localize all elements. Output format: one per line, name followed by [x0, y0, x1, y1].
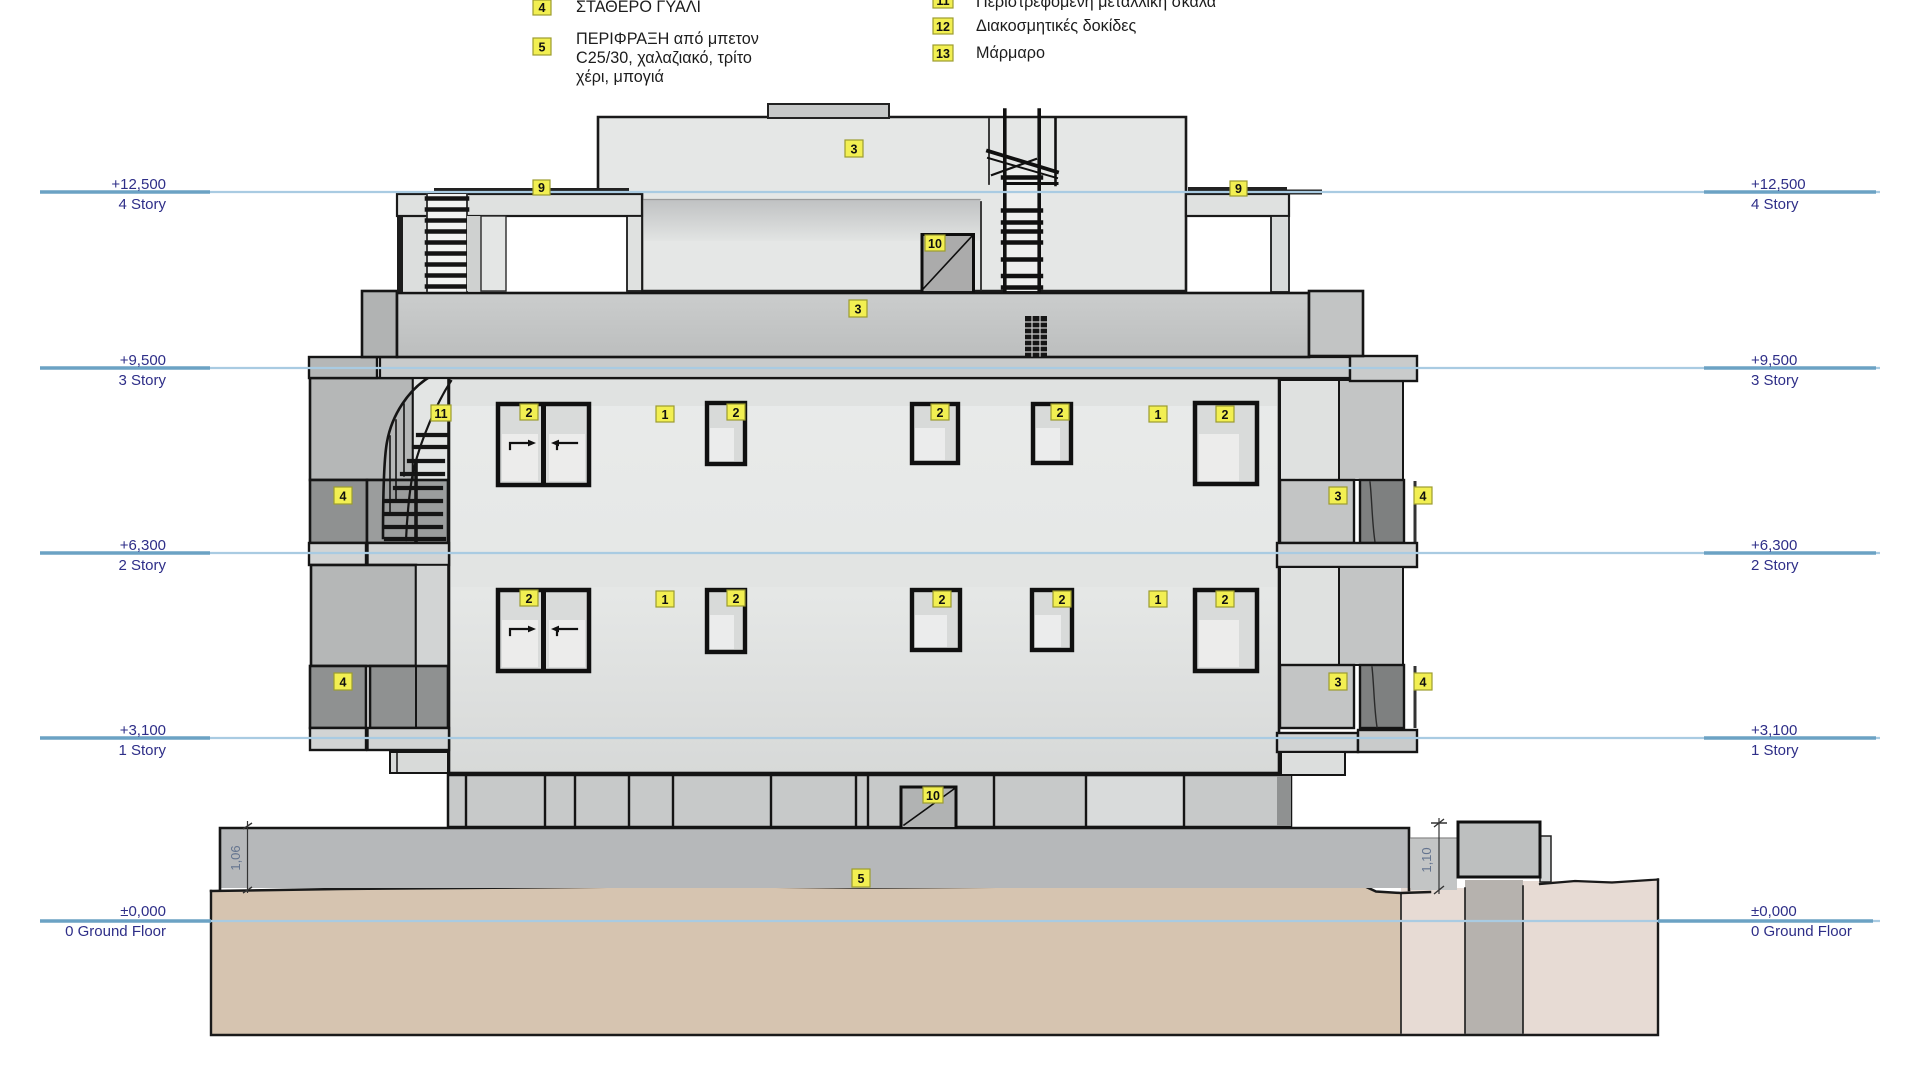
svg-text:4: 4	[539, 1, 546, 15]
svg-text:2: 2	[1057, 406, 1064, 420]
svg-text:C25/30, χαλαζιακό, τρίτο: C25/30, χαλαζιακό, τρίτο	[576, 49, 752, 67]
svg-text:10: 10	[926, 789, 940, 803]
svg-text:2: 2	[1222, 593, 1229, 607]
svg-text:5: 5	[539, 41, 546, 55]
svg-text:4 Story: 4 Story	[118, 196, 166, 213]
svg-text:4: 4	[340, 490, 347, 504]
svg-text:9: 9	[538, 181, 545, 195]
svg-text:2 Story: 2 Story	[118, 557, 166, 574]
svg-text:2: 2	[939, 593, 946, 607]
svg-text:3: 3	[851, 143, 858, 157]
svg-text:ΠΕΡΙΦΡΑΞΗ από μπετον: ΠΕΡΙΦΡΑΞΗ από μπετον	[576, 30, 759, 48]
svg-text:11: 11	[936, 0, 949, 8]
svg-text:+3,100: +3,100	[1751, 722, 1797, 739]
svg-text:Διακοσμητικές δοκίδες: Διακοσμητικές δοκίδες	[976, 17, 1137, 35]
svg-text:3: 3	[855, 303, 862, 317]
svg-text:3: 3	[1335, 490, 1342, 504]
svg-text:12: 12	[936, 20, 950, 34]
svg-text:2: 2	[1059, 593, 1066, 607]
svg-text:ΣΤΑΘΕΡΟ ΓΥΑΛΙ: ΣΤΑΘΕΡΟ ΓΥΑΛΙ	[576, 0, 701, 16]
svg-text:2: 2	[1222, 408, 1229, 422]
svg-text:2: 2	[526, 406, 533, 420]
svg-text:1: 1	[1155, 408, 1162, 422]
svg-text:5: 5	[858, 872, 865, 886]
svg-text:10: 10	[928, 237, 942, 251]
svg-text:Περιστρεφόμενη μεταλλική σκάλα: Περιστρεφόμενη μεταλλική σκάλα	[976, 0, 1216, 11]
svg-text:9: 9	[1235, 182, 1242, 196]
svg-text:+9,500: +9,500	[1751, 352, 1797, 369]
svg-text:χέρι, μπογιά: χέρι, μπογιά	[576, 68, 664, 86]
svg-text:1: 1	[1155, 593, 1162, 607]
svg-text:Μάρμαρο: Μάρμαρο	[976, 44, 1045, 62]
svg-text:1: 1	[662, 593, 669, 607]
svg-text:+6,300: +6,300	[120, 537, 166, 554]
svg-text:±0,000: ±0,000	[1751, 903, 1797, 920]
svg-text:3 Story: 3 Story	[118, 372, 166, 389]
svg-text:1,06: 1,06	[228, 845, 243, 870]
svg-text:11: 11	[434, 407, 447, 421]
svg-text:3: 3	[1335, 676, 1342, 690]
svg-text:1 Story: 1 Story	[1751, 742, 1799, 759]
svg-text:+6,300: +6,300	[1751, 537, 1797, 554]
svg-text:4: 4	[1420, 676, 1427, 690]
svg-text:+3,100: +3,100	[120, 722, 166, 739]
svg-text:2 Story: 2 Story	[1751, 557, 1799, 574]
svg-text:+12,500: +12,500	[111, 176, 166, 193]
svg-text:0 Ground Floor: 0 Ground Floor	[65, 923, 166, 940]
svg-text:2: 2	[526, 592, 533, 606]
svg-text:4: 4	[340, 676, 347, 690]
svg-text:4: 4	[1420, 490, 1427, 504]
svg-text:3 Story: 3 Story	[1751, 372, 1799, 389]
svg-text:2: 2	[733, 592, 740, 606]
svg-text:13: 13	[936, 47, 950, 61]
svg-text:2: 2	[733, 406, 740, 420]
svg-text:+12,500: +12,500	[1751, 176, 1806, 193]
svg-text:1: 1	[662, 408, 669, 422]
svg-text:±0,000: ±0,000	[120, 903, 166, 920]
svg-text:4 Story: 4 Story	[1751, 196, 1799, 213]
svg-text:+9,500: +9,500	[120, 352, 166, 369]
svg-text:1,10: 1,10	[1419, 847, 1434, 872]
svg-text:1 Story: 1 Story	[118, 742, 166, 759]
svg-text:0 Ground Floor: 0 Ground Floor	[1751, 923, 1852, 940]
svg-text:2: 2	[937, 406, 944, 420]
